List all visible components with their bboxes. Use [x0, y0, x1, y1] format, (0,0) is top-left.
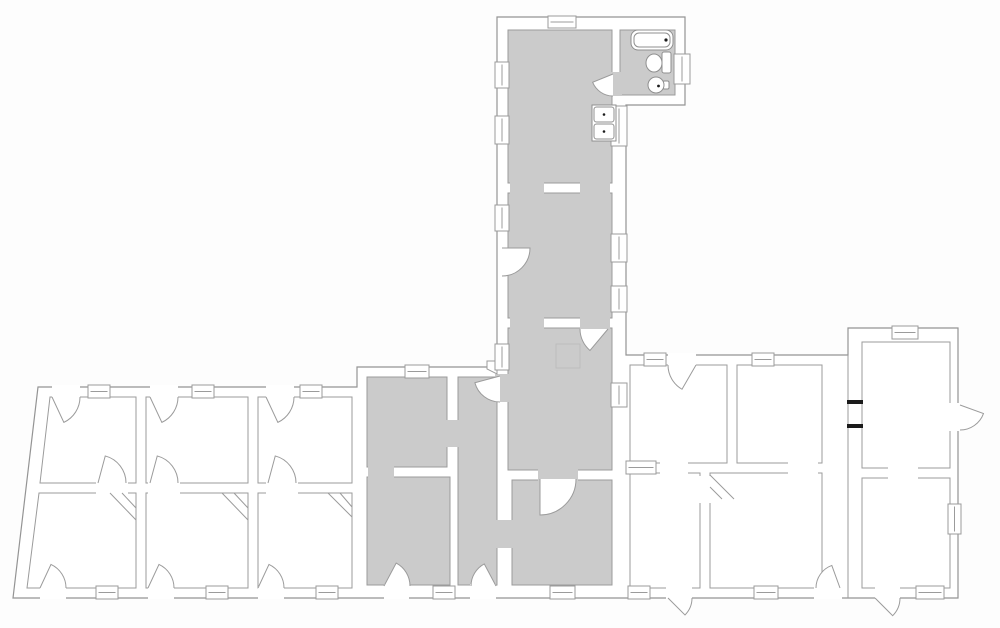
wall-opening — [888, 466, 918, 480]
wall-opening — [660, 461, 688, 475]
round-sink-icon — [648, 77, 664, 93]
room-m2 — [367, 477, 450, 585]
wall-opening — [666, 586, 692, 599]
door-leaf-fill-entry-f2 — [875, 598, 900, 616]
wall-opening — [668, 353, 696, 366]
room-f2 — [862, 478, 950, 588]
wall-opening — [266, 481, 298, 495]
room-r4 — [710, 473, 822, 588]
wall-opening — [150, 385, 178, 398]
wall-opening — [510, 181, 544, 195]
room-b1 — [27, 493, 136, 588]
wall-opening — [384, 584, 409, 599]
toilet-bowl — [646, 54, 662, 72]
sink-drain — [657, 85, 660, 88]
wall-opening — [52, 385, 80, 398]
room-hallway — [458, 377, 497, 585]
wall-opening — [510, 316, 544, 330]
wall-opening — [580, 316, 610, 330]
wall-opening — [445, 420, 460, 447]
bathtub-drain — [664, 38, 667, 41]
basin-drain — [603, 113, 606, 116]
room-lower-room — [508, 328, 612, 470]
toilet-tank — [662, 52, 671, 73]
door-leaf-fill-entry-r3 — [668, 598, 692, 615]
wall-opening — [368, 465, 394, 479]
room-r2 — [737, 365, 822, 463]
wall-opening — [148, 481, 180, 495]
room-r3 — [630, 473, 700, 588]
wall-opening — [948, 403, 961, 431]
wall-opening — [875, 586, 900, 599]
floor-plan-page — [0, 0, 1000, 628]
wall-opening — [96, 481, 128, 495]
black-wall-cap — [847, 424, 863, 428]
wall-opening — [266, 385, 294, 398]
wall-opening — [470, 584, 496, 599]
room-f1 — [862, 342, 950, 468]
wall-opening — [495, 520, 514, 548]
black-wall-cap — [847, 400, 863, 404]
wall-opening — [698, 476, 712, 503]
floor-plan-drawing — [0, 0, 1000, 628]
wall-opening — [788, 461, 818, 475]
room-m1 — [367, 377, 447, 467]
wall-opening — [580, 181, 610, 195]
basin-drain — [603, 130, 606, 133]
